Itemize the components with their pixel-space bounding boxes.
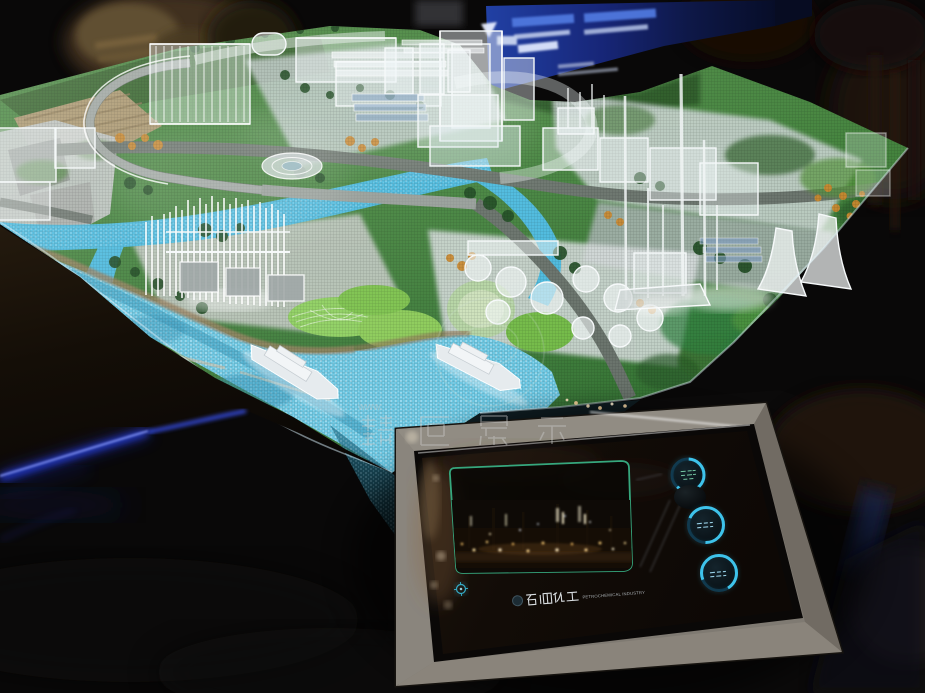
svg-text:WWW.: WWW. xyxy=(358,403,382,412)
